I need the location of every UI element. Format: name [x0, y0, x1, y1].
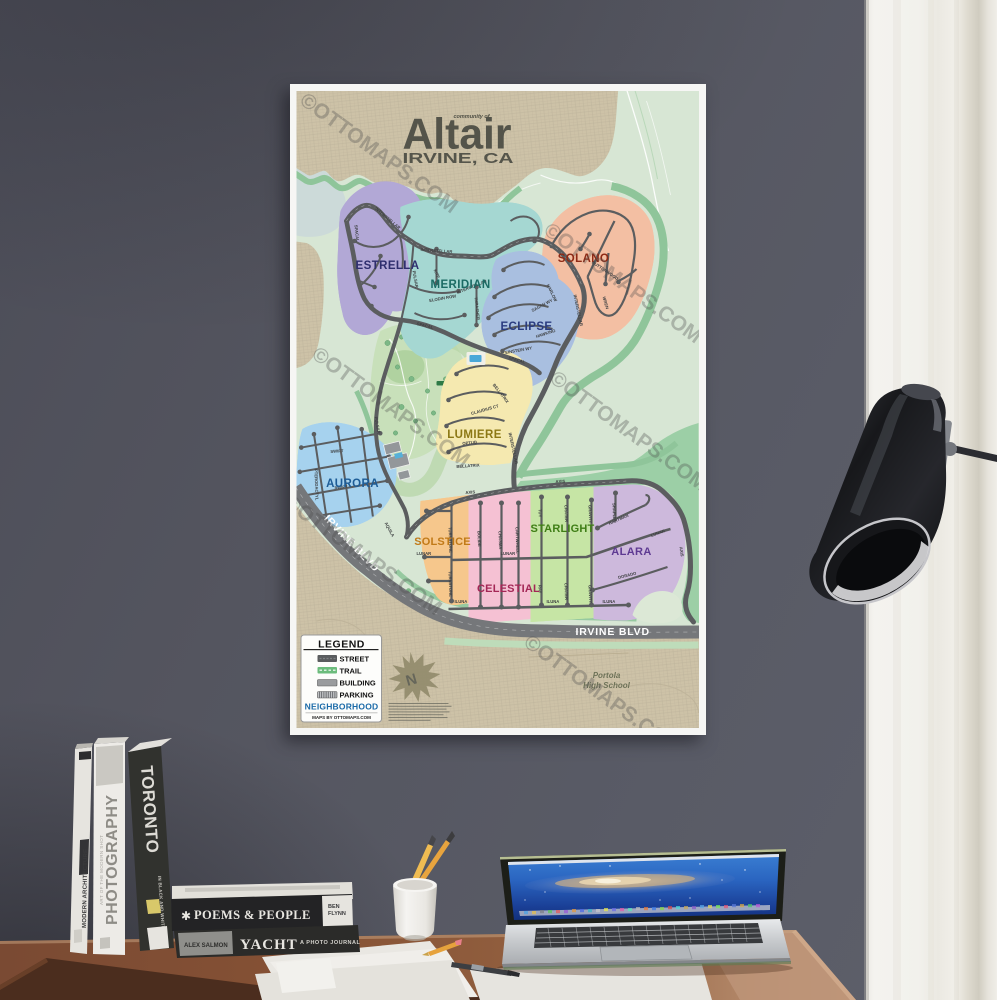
svg-text:ALEX SALMON: ALEX SALMON — [184, 943, 228, 949]
svg-text:CELESTIAL: CELESTIAL — [477, 583, 540, 595]
svg-text:STREET: STREET — [340, 655, 370, 664]
svg-text:BOLIDE: BOLIDE — [477, 531, 483, 547]
svg-text:ECLIPSE: ECLIPSE — [500, 321, 552, 333]
svg-text:ILUNA: ILUNA — [547, 599, 560, 604]
svg-text:STARLIGHT: STARLIGHT — [531, 523, 595, 535]
svg-text:✱: ✱ — [181, 909, 191, 923]
svg-text:TRAIL: TRAIL — [340, 667, 362, 676]
svg-text:POEMS & PEOPLE: POEMS & PEOPLE — [194, 908, 311, 922]
svg-text:LUNAR: LUNAR — [501, 551, 516, 556]
svg-text:ART OF THE MODERN SHOT: ART OF THE MODERN SHOT — [99, 835, 104, 905]
svg-text:CRATER: CRATER — [564, 505, 570, 522]
svg-text:FLYNN: FLYNN — [328, 911, 346, 917]
svg-text:AURORA: AURORA — [326, 478, 379, 490]
svg-text:ILUNA: ILUNA — [603, 599, 616, 604]
svg-text:AXIS: AXIS — [465, 489, 475, 495]
svg-text:ALARA: ALARA — [611, 546, 652, 558]
svg-text:CARTWHEEL: CARTWHEEL — [515, 527, 521, 554]
svg-text:LUNAR: LUNAR — [417, 551, 432, 556]
svg-text:GRAVITY: GRAVITY — [588, 505, 594, 524]
svg-text:GRAVITY: GRAVITY — [588, 585, 594, 604]
svg-text:YACHT: YACHT — [240, 937, 298, 953]
svg-text:BEN: BEN — [328, 904, 340, 910]
svg-text:CRATER: CRATER — [564, 583, 570, 600]
svg-text:ESTRELLA: ESTRELLA — [356, 260, 420, 272]
svg-text:SWIFT: SWIFT — [330, 448, 344, 454]
svg-text:MAPS BY OTTOMAPS.COM: MAPS BY OTTOMAPS.COM — [312, 715, 371, 720]
svg-text:TUY: TUY — [538, 509, 543, 518]
svg-text:TURNSTONE: TURNSTONE — [448, 571, 454, 597]
svg-text:NEIGHBORHOOD: NEIGHBORHOOD — [305, 702, 379, 712]
svg-text:SOLSTICE: SOLSTICE — [414, 536, 471, 548]
svg-text:MERIDIAN: MERIDIAN — [430, 279, 490, 291]
svg-text:LEGEND: LEGEND — [318, 639, 365, 651]
svg-text:PHOTOGRAPHY: PHOTOGRAPHY — [104, 794, 121, 925]
svg-text:MODERN ARCHITECTURE: MODERN ARCHITECTURE — [82, 849, 89, 928]
svg-text:ILUNA: ILUNA — [455, 599, 468, 604]
svg-text:CHASMA: CHASMA — [498, 531, 504, 550]
svg-text:AXIS: AXIS — [555, 479, 565, 484]
svg-text:A PHOTO JOURNAL: A PHOTO JOURNAL — [300, 940, 361, 946]
svg-text:IRVINE BLVD: IRVINE BLVD — [576, 626, 650, 638]
svg-text:BUILDING: BUILDING — [340, 679, 376, 688]
svg-text:IRVINE, CA: IRVINE, CA — [403, 151, 515, 167]
svg-text:PARKING: PARKING — [340, 691, 374, 700]
